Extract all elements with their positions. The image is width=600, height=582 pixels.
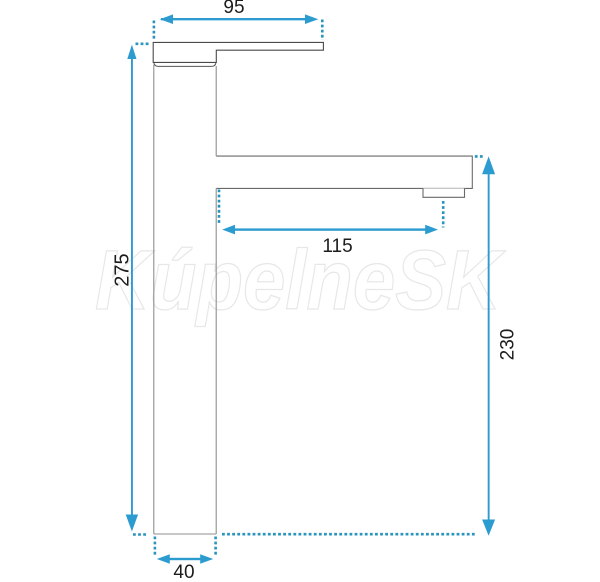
svg-text:230: 230 (498, 329, 519, 361)
svg-text:115: 115 (322, 236, 352, 257)
svg-text:95: 95 (223, 0, 244, 18)
svg-text:KúpelneSK: KúpelneSK (95, 233, 506, 327)
svg-text:275: 275 (112, 253, 134, 286)
svg-text:40: 40 (173, 562, 194, 582)
